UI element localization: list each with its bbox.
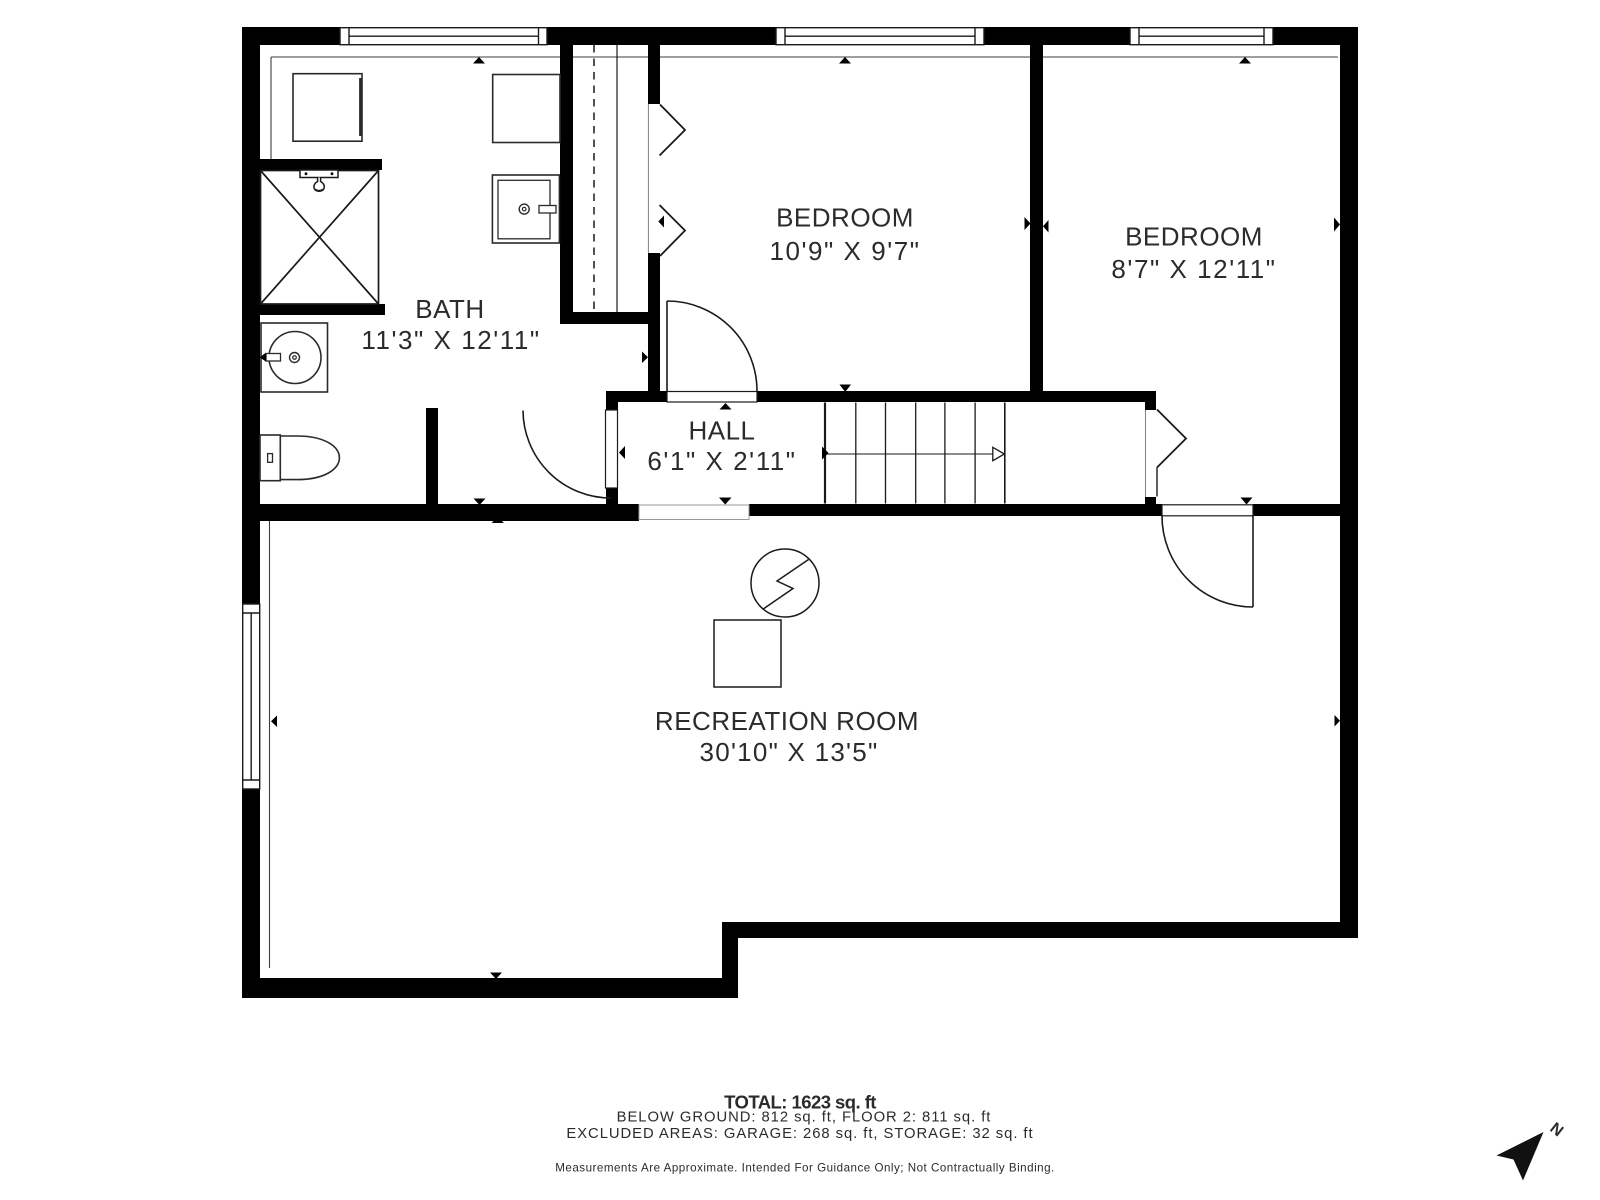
svg-text:11'3" X 12'11": 11'3" X 12'11" (361, 325, 540, 355)
svg-text:10'9" X 9'7": 10'9" X 9'7" (769, 236, 920, 266)
svg-text:HALL: HALL (688, 416, 755, 446)
svg-text:8'7" X 12'11": 8'7" X 12'11" (1111, 254, 1276, 284)
svg-text:BEDROOM: BEDROOM (776, 203, 914, 233)
svg-text:BELOW GROUND: 812 sq. ft, FLOO: BELOW GROUND: 812 sq. ft, FLOOR 2: 811 s… (617, 1110, 992, 1126)
svg-text:RECREATION ROOM: RECREATION ROOM (655, 706, 919, 736)
svg-text:EXCLUDED AREAS: GARAGE: 268 sq: EXCLUDED AREAS: GARAGE: 268 sq. ft, STOR… (566, 1126, 1033, 1142)
svg-text:6'1" X 2'11": 6'1" X 2'11" (647, 446, 796, 476)
svg-text:Measurements Are Approximate.: Measurements Are Approximate. Intended F… (555, 1162, 1055, 1175)
svg-text:BEDROOM: BEDROOM (1125, 222, 1263, 252)
svg-text:BATH: BATH (415, 294, 484, 324)
svg-text:30'10" X 13'5": 30'10" X 13'5" (700, 737, 879, 767)
